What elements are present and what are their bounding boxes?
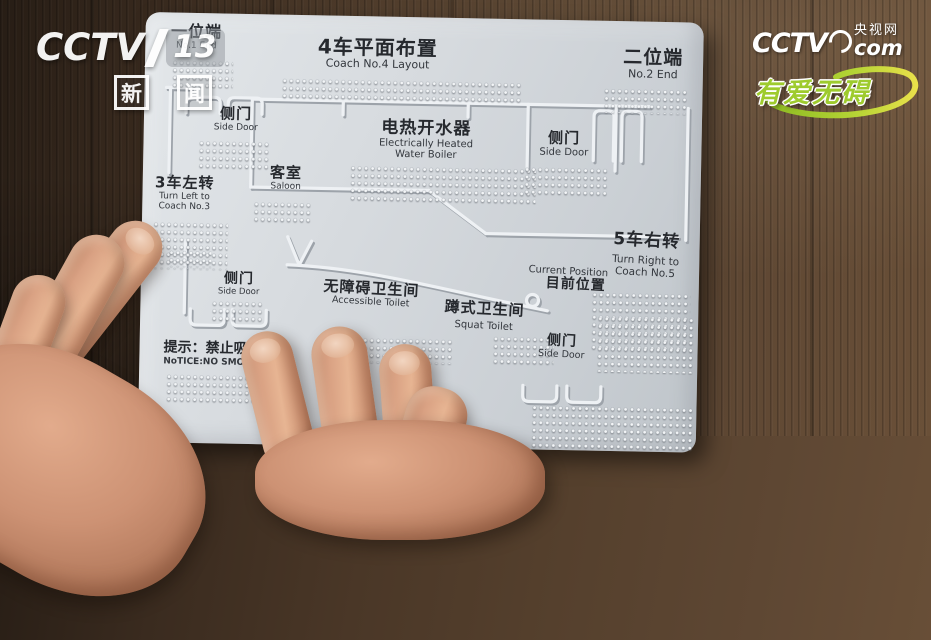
side-door-en: Side Door xyxy=(196,122,276,134)
label-squat-toilet: 蹲式卫生间 Squat Toilet xyxy=(423,297,545,334)
saloon-en: Saloon xyxy=(251,181,321,192)
cctvcom-brand-text: CCTV xyxy=(752,28,827,59)
braille-cluster xyxy=(525,167,608,197)
label-side-door-upper-right: 侧门 Side Door xyxy=(521,129,607,159)
cctv13-channel-name-char: 闻 xyxy=(177,75,212,110)
no2-end-en: No.2 End xyxy=(593,68,713,83)
turn-left-en2: Coach No.3 xyxy=(144,201,224,213)
side-door-en: Side Door xyxy=(521,146,606,159)
cctv13-channel-number: 13 xyxy=(166,29,225,67)
cctvcom-slogan: 有爱无碍 xyxy=(754,71,870,110)
braille-cluster xyxy=(532,405,693,450)
braille-cluster xyxy=(254,202,310,223)
braille-cluster xyxy=(350,166,536,204)
side-door-zh: 侧门 xyxy=(521,129,606,147)
label-map-title: 4车平面布置 Coach No.4 Layout xyxy=(265,34,491,73)
side-door-en: Side Door xyxy=(199,287,279,298)
cctv13-watermark: CCTV 13 新 闻 xyxy=(36,26,225,110)
label-side-door-lower-left: 侧门 Side Door xyxy=(199,271,279,298)
saloon-zh: 客室 xyxy=(251,164,321,182)
cctv-ring-icon xyxy=(824,25,856,57)
braille-cluster xyxy=(212,301,264,322)
right-hand-palm xyxy=(255,420,545,540)
braille-cluster xyxy=(597,317,693,374)
braille-cluster xyxy=(604,89,686,115)
no2-end-zh: 二位端 xyxy=(593,47,713,71)
cctvcom-domain: com xyxy=(854,38,903,59)
turn-left-zh: 3车左转 xyxy=(145,174,225,192)
cctv13-channel-name-char: 新 xyxy=(114,75,149,110)
side-door-zh: 侧门 xyxy=(199,271,279,288)
label-side-door-bottom-right: 侧门 Side Door xyxy=(521,332,602,363)
label-water-boiler: 电热开水器 Electrically Heated Water Boiler xyxy=(333,118,519,163)
label-no2-end: 二位端 No.2 End xyxy=(593,47,714,83)
cctvcom-watermark: CCTV 央视网 com 有爱无碍 xyxy=(752,24,924,119)
cctv13-brand-text: CCTV xyxy=(36,26,144,69)
label-turn-left-coach3: 3车左转 Turn Left to Coach No.3 xyxy=(144,174,225,212)
label-saloon: 客室 Saloon xyxy=(251,164,322,192)
braille-cluster xyxy=(169,250,211,267)
